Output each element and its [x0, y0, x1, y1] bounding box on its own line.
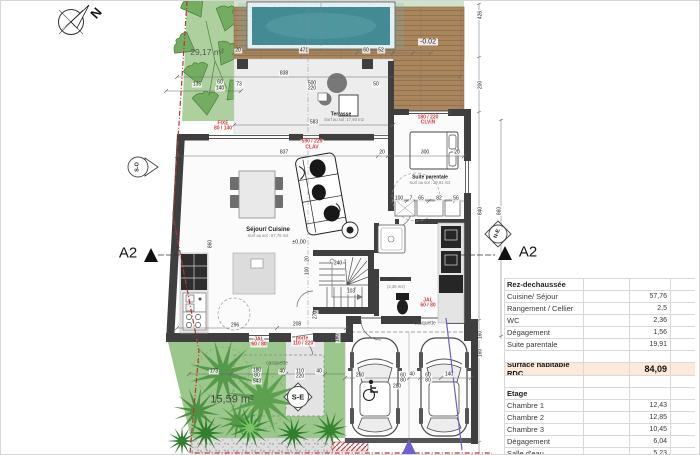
table-row: Etage — [505, 388, 695, 400]
table-cell-empty — [584, 327, 630, 338]
orientation-marker-so — [128, 157, 158, 177]
table-cell-empty — [671, 363, 695, 375]
floorplan-screenshot: 2047160521356014073838500220505838372030… — [0, 0, 700, 455]
table-cell-empty — [584, 448, 630, 455]
table-cell-label: Surface habitable RDC — [505, 363, 584, 375]
table-row: Chambre 310,45 — [505, 424, 695, 436]
doormat-hatch — [332, 442, 368, 451]
table-cell-value: 2,5 — [630, 303, 671, 314]
table-cell-empty — [584, 376, 630, 387]
table-row: Cuisine/ Séjour57,76 — [505, 291, 695, 303]
table-cell-empty — [671, 315, 695, 326]
surface-table: Rez-dechausséeCuisine/ Séjour57,76Rangem… — [504, 278, 695, 455]
table-cell-empty — [584, 279, 630, 290]
table-row: Rez-dechaussée — [505, 279, 695, 291]
table-cell-value: 5,23 — [630, 448, 671, 455]
table-row: Surface habitable RDC84,09 — [505, 363, 695, 376]
compass-rose — [59, 5, 90, 35]
table-cell-empty — [584, 351, 630, 362]
table-cell-value: 1,56 — [630, 327, 671, 338]
table-cell-value — [630, 388, 671, 399]
table-cell-empty — [584, 339, 630, 350]
table-cell-label: Chambre 2 — [505, 412, 584, 423]
table-cell-empty — [671, 436, 695, 447]
table-cell-empty — [584, 436, 630, 447]
pool — [247, 2, 395, 49]
table-row: Chambre 112,43 — [505, 400, 695, 412]
table-cell-label — [505, 376, 584, 387]
table-cell-empty — [584, 388, 630, 399]
table-cell-empty — [584, 363, 630, 375]
table-cell-label: Etage — [505, 388, 584, 399]
gravel-strip — [190, 438, 333, 453]
table-cell-empty — [671, 448, 695, 455]
table-cell-label: Chambre 3 — [505, 424, 584, 435]
table-cell-label: Dégagement — [505, 436, 584, 447]
table-cell-label — [505, 351, 584, 362]
section-triangle-left — [144, 248, 158, 262]
table-cell-empty — [671, 388, 695, 399]
table-cell-label: Cuisine/ Séjour — [505, 291, 584, 302]
car-right — [417, 338, 471, 436]
table-row — [505, 351, 695, 363]
table-row: Dégagement6,04 — [505, 436, 695, 448]
table-row — [505, 376, 695, 388]
table-row: Salle d'eau5,23 — [505, 448, 695, 455]
table-cell-value: 19,91 — [630, 339, 671, 350]
section-triangle-right — [498, 246, 512, 260]
table-cell-value — [630, 279, 671, 290]
shower — [378, 225, 405, 253]
table-cell-label: Suite parentale — [505, 339, 584, 350]
table-cell-value — [630, 376, 671, 387]
table-cell-value: 10,45 — [630, 424, 671, 435]
terrace-floor — [234, 59, 393, 134]
table-cell-value: 84,09 — [630, 363, 671, 375]
table-cell-empty — [671, 279, 695, 290]
orientation-marker-ne — [485, 221, 511, 247]
table-cell-empty — [584, 424, 630, 435]
table-cell-empty — [671, 424, 695, 435]
table-cell-label: Chambre 1 — [505, 400, 584, 411]
table-cell-value — [630, 351, 671, 362]
table-cell-empty — [671, 291, 695, 302]
table-cell-empty — [584, 291, 630, 302]
table-cell-empty — [671, 351, 695, 362]
table-cell-value: 2,36 — [630, 315, 671, 326]
table-cell-value: 57,76 — [630, 291, 671, 302]
table-row: Suite parentale19,91 — [505, 339, 695, 351]
table-cell-value: 6,04 — [630, 436, 671, 447]
table-cell-empty — [671, 303, 695, 314]
car-left — [348, 338, 402, 436]
table-cell-empty — [671, 412, 695, 423]
table-cell-empty — [671, 376, 695, 387]
tall-units — [438, 223, 464, 323]
table-cell-label: Dégagement — [505, 327, 584, 338]
table-cell-label: WC — [505, 315, 584, 326]
table-cell-value: 12,43 — [630, 400, 671, 411]
pouf-center — [347, 227, 354, 234]
table-cell-empty — [584, 412, 630, 423]
table-cell-empty — [671, 339, 695, 350]
table-cell-label: Salle d'eau — [505, 448, 584, 455]
table-row: Rangement / Cellier2,5 — [505, 303, 695, 315]
table-cell-empty — [584, 315, 630, 326]
table-cell-empty — [671, 327, 695, 338]
table-row: Dégagement1,56 — [505, 327, 695, 339]
table-cell-empty — [584, 400, 630, 411]
table-cell-empty — [584, 303, 630, 314]
table-cell-value: 12,85 — [630, 412, 671, 423]
table-cell-label: Rangement / Cellier — [505, 303, 584, 314]
table-row: WC2,36 — [505, 315, 695, 327]
table-row: Chambre 212,85 — [505, 412, 695, 424]
table-cell-empty — [671, 400, 695, 411]
table-cell-label: Rez-dechaussée — [505, 279, 584, 290]
